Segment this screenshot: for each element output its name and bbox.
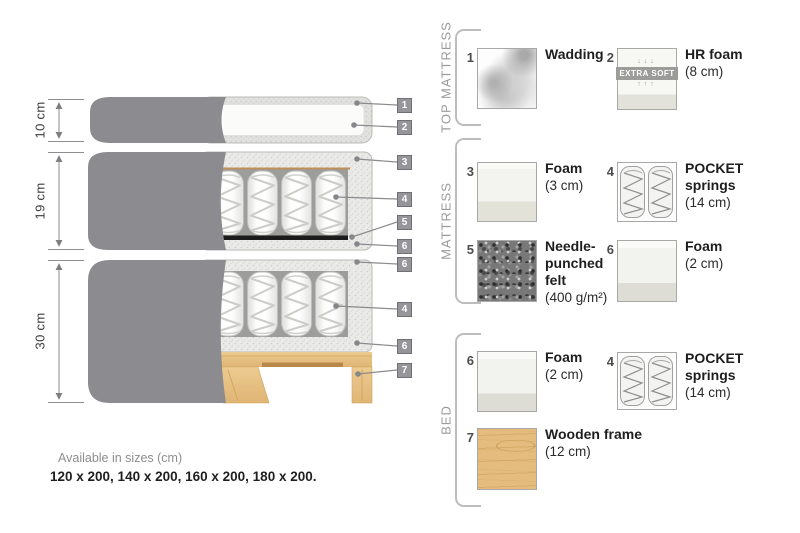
swatch-foam-2cm-bed <box>477 351 537 412</box>
mattress-section <box>88 152 372 250</box>
swatch-needle-punched-felt <box>477 240 537 302</box>
legend-num-4b: 4 <box>598 354 614 369</box>
callout-chip-1: 1 <box>397 98 412 113</box>
bed-base-cover <box>88 260 226 403</box>
available-sizes-list: 120 x 200, 140 x 200, 160 x 200, 180 x 2… <box>50 469 317 484</box>
callout-chip-2: 2 <box>397 120 412 135</box>
bed-base-section <box>88 260 372 403</box>
callout-chip-6c: 6 <box>397 339 412 354</box>
swatch-foam-3cm <box>477 162 537 222</box>
section-title-mattress: MATTRESS <box>439 182 454 260</box>
pocket-spring <box>248 171 278 235</box>
legend-item-pocket-springs-bed: POCKET springs (14 cm) <box>685 350 743 401</box>
pocket-spring <box>282 171 312 235</box>
swatch-foam-2cm <box>617 240 677 302</box>
dimension-lines <box>48 100 84 403</box>
dimension-label-30cm: 30 cm <box>33 313 48 350</box>
arrows-up-icon: ↑↑↑ <box>637 81 657 89</box>
legend-item-foam-3cm: Foam (3 cm) <box>545 160 583 194</box>
pocket-springs-icon <box>618 163 676 221</box>
legend-num-7: 7 <box>458 430 474 445</box>
legend-item-wadding: Wadding <box>545 46 604 63</box>
callout-chip-6b: 6 <box>397 257 412 272</box>
legend-num-6b: 6 <box>458 353 474 368</box>
callout-chip-4b: 4 <box>397 302 412 317</box>
swatch-wooden-frame <box>477 428 537 490</box>
pocket-spring <box>248 272 278 336</box>
hr-foam-core <box>200 105 364 136</box>
legend-num-3: 3 <box>458 164 474 179</box>
pocket-spring <box>316 171 346 235</box>
tan-liner <box>212 168 350 170</box>
legend-item-foam-2cm-bed: Foam (2 cm) <box>545 349 583 383</box>
top-mattress-section <box>90 97 372 143</box>
legend-item-pocket-springs: POCKET springs (14 cm) <box>685 160 743 211</box>
swatch-wadding <box>477 48 537 109</box>
pocket-springs-icon <box>618 353 676 409</box>
pocket-spring <box>316 272 346 336</box>
bed-construction-infographic: 10 cm 19 cm 30 cm 1 2 3 4 5 6 6 4 6 7 TO… <box>0 0 800 533</box>
legend-num-5: 5 <box>458 242 474 257</box>
dimension-label-19cm: 19 cm <box>33 183 48 220</box>
callout-chip-7: 7 <box>397 363 412 378</box>
callout-chip-5: 5 <box>397 215 412 230</box>
section-title-bed: BED <box>439 405 454 435</box>
top-mattress-cover <box>90 97 226 143</box>
arrows-down-icon: ↓↓↓ <box>637 58 657 66</box>
swatch-hr-foam: ↓↓↓ EXTRA SOFT ↑↑↑ <box>617 48 677 110</box>
legend-num-4: 4 <box>598 164 614 179</box>
available-sizes-caption: Available in sizes (cm) <box>58 451 182 465</box>
wooden-frame <box>200 352 372 403</box>
callout-chip-4: 4 <box>397 192 412 207</box>
pocket-spring <box>282 272 312 336</box>
legend-num-1: 1 <box>458 50 474 65</box>
legend-num-6: 6 <box>598 242 614 257</box>
mattress-cover <box>88 152 226 250</box>
extra-soft-badge: EXTRA SOFT <box>616 67 677 80</box>
section-title-top-mattress: TOP MATTRESS <box>439 21 454 133</box>
callout-chip-6: 6 <box>397 239 412 254</box>
dimension-label-10cm: 10 cm <box>33 102 48 139</box>
callout-chip-3: 3 <box>397 155 412 170</box>
legend-item-hr-foam: HR foam (8 cm) <box>685 46 743 80</box>
swatch-pocket-springs-bed <box>617 352 677 410</box>
legend-item-foam-2cm: Foam (2 cm) <box>685 238 723 272</box>
swatch-pocket-springs <box>617 162 677 222</box>
legend-num-2: 2 <box>598 50 614 65</box>
legend-item-wooden-frame: Wooden frame (12 cm) <box>545 426 642 460</box>
needle-punched-felt-layer <box>212 236 348 241</box>
